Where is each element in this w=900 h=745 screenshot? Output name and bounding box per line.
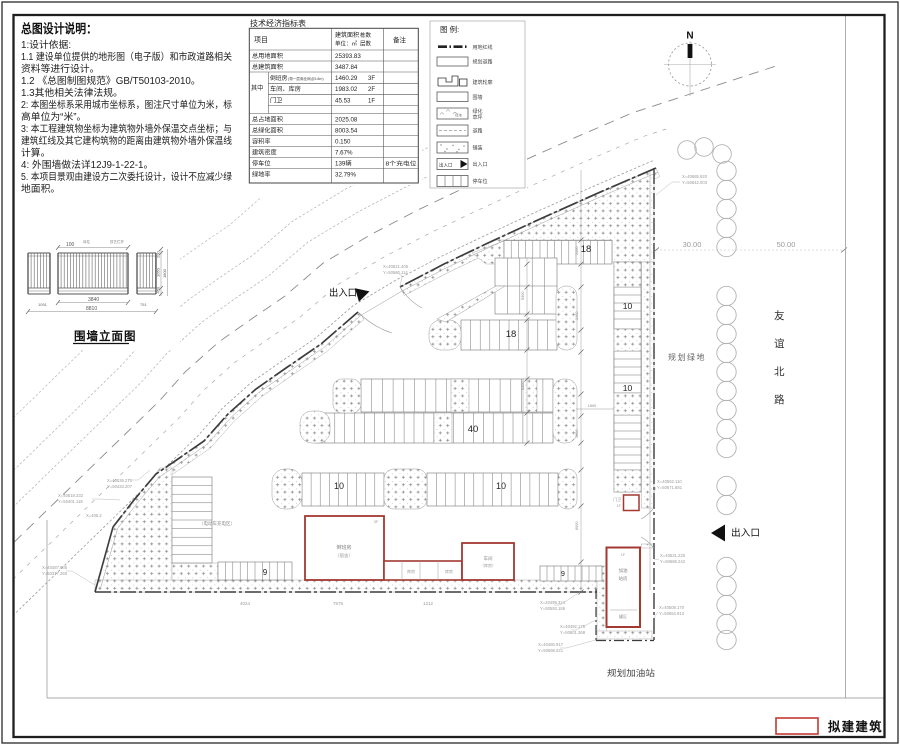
- svg-text:4024: 4024: [240, 601, 251, 606]
- svg-text:Y=50601.368: Y=50601.368: [560, 630, 586, 635]
- svg-text:项目: 项目: [254, 36, 268, 44]
- svg-text:资料等进行设计。: 资料等进行设计。: [21, 62, 99, 75]
- svg-text:车间: 车间: [484, 555, 493, 562]
- svg-text:1460.29: 1460.29: [335, 75, 358, 82]
- svg-text:备注: 备注: [393, 35, 407, 44]
- svg-text:建筑密度: 建筑密度: [252, 148, 277, 156]
- svg-text:1500: 1500: [588, 404, 596, 408]
- svg-text:地面积。: 地面积。: [21, 182, 60, 195]
- svg-text:库房: 库房: [445, 568, 453, 574]
- svg-text:32.79%: 32.79%: [335, 171, 356, 178]
- svg-text:X=40531.225: X=40531.225: [660, 553, 686, 558]
- svg-text:围墙: 围墙: [473, 94, 483, 101]
- svg-text:建筑轮廓: 建筑轮廓: [473, 79, 493, 86]
- svg-text:2: 本图坐标系采用城市坐标系，图注尺寸单位为米，标: 2: 本图坐标系采用城市坐标系，图注尺寸单位为米，标: [21, 98, 232, 111]
- svg-text:5300: 5300: [521, 382, 525, 390]
- svg-text:砖柱: 砖柱: [83, 239, 90, 244]
- svg-text:8003.54: 8003.54: [335, 127, 358, 134]
- svg-text:出入口: 出入口: [329, 287, 357, 299]
- svg-text:（库房）: （库房）: [480, 562, 496, 568]
- svg-text:1.1 建设单位提供的地形图（电子版）和市政道路相关: 1.1 建设单位提供的地形图（电子版）和市政道路相关: [21, 50, 232, 63]
- svg-text:50.00: 50.00: [777, 240, 796, 249]
- svg-text:单位：㎡: 单位：㎡: [335, 40, 358, 48]
- svg-text:Y=50668.242: Y=50668.242: [660, 559, 686, 564]
- svg-text:1212: 1212: [423, 601, 434, 606]
- svg-text:Y=50377.260: Y=50377.260: [42, 571, 68, 576]
- svg-text:X=40685.920: X=40685.920: [682, 174, 708, 179]
- svg-text:铺装: 铺装: [473, 145, 483, 152]
- svg-text:9: 9: [263, 568, 268, 577]
- svg-text:10: 10: [623, 383, 633, 393]
- svg-text:层数: 层数: [360, 40, 372, 48]
- svg-text:总图设计说明：: 总图设计说明：: [21, 21, 97, 36]
- svg-text:计算。: 计算。: [21, 146, 50, 159]
- svg-text:Y=50401.118: Y=50401.118: [58, 499, 83, 504]
- svg-text:4: 外围墙做法详12J9-1-22-1。: 4: 外围墙做法详12J9-1-22-1。: [21, 158, 153, 171]
- svg-text:2400: 2400: [575, 247, 579, 255]
- svg-text:高单位为“米”。: 高单位为“米”。: [21, 110, 86, 123]
- svg-text:草坪: 草坪: [473, 114, 483, 121]
- svg-text:200: 200: [156, 251, 161, 258]
- svg-text:栋数: 栋数: [360, 31, 372, 39]
- svg-text:3F: 3F: [374, 519, 379, 524]
- svg-text:图 例:: 图 例:: [440, 24, 459, 34]
- svg-text:罐区: 罐区: [619, 613, 627, 619]
- svg-text:100: 100: [66, 242, 75, 248]
- svg-text:用地红线: 用地红线: [473, 44, 493, 51]
- svg-text:1983.02: 1983.02: [335, 86, 358, 93]
- svg-text:绿地率: 绿地率: [252, 170, 271, 178]
- svg-text:绿化: 绿化: [473, 108, 483, 115]
- svg-text:规划道路: 规划道路: [473, 59, 493, 66]
- svg-text:X=40480.917: X=40480.917: [538, 642, 564, 647]
- svg-text:总绿化面积: 总绿化面积: [252, 126, 283, 134]
- svg-text:3F: 3F: [368, 76, 375, 82]
- svg-text:7575: 7575: [333, 601, 344, 606]
- svg-text:停车位: 停车位: [473, 178, 488, 185]
- svg-text:X=40518.332: X=40518.332: [58, 493, 84, 498]
- svg-text:门卫: 门卫: [613, 497, 621, 502]
- svg-text:X=405.2: X=405.2: [86, 513, 102, 518]
- svg-text:Y=50642.003: Y=50642.003: [682, 180, 708, 185]
- svg-text:规划绿地: 规划绿地: [668, 352, 706, 362]
- svg-text:3840: 3840: [88, 297, 99, 303]
- svg-text:1800: 1800: [162, 268, 167, 278]
- svg-text:友: 友: [774, 309, 785, 322]
- svg-text:45.53: 45.53: [335, 97, 351, 104]
- svg-text:出入口: 出入口: [473, 161, 488, 168]
- svg-text:绿地: 绿地: [455, 113, 463, 118]
- svg-text:Y=50560.114: Y=50560.114: [383, 270, 408, 275]
- svg-text:拟建建筑: 拟建建筑: [828, 719, 883, 734]
- svg-text:0.150: 0.150: [335, 138, 351, 145]
- svg-text:18: 18: [506, 329, 517, 340]
- svg-text:建筑红线及其它建构筑物的距离由建筑物外墙外保温线: 建筑红线及其它建构筑物的距离由建筑物外墙外保温线: [21, 134, 232, 147]
- svg-text:技术经济指标表: 技术经济指标表: [250, 18, 306, 28]
- svg-text:1.3其他相关法律法规。: 1.3其他相关法律法规。: [21, 86, 123, 99]
- svg-text:1051: 1051: [38, 302, 48, 307]
- svg-text:10: 10: [496, 481, 506, 491]
- svg-text:1F: 1F: [368, 98, 375, 104]
- svg-text:铁艺栏杆: 铁艺栏杆: [110, 239, 124, 244]
- svg-text:路: 路: [774, 393, 785, 406]
- svg-text:倒班房: 倒班房: [270, 74, 288, 82]
- svg-text:总占地面积: 总占地面积: [252, 115, 283, 123]
- svg-text:1:设计依据:: 1:设计依据:: [21, 38, 71, 51]
- svg-text:6000: 6000: [575, 522, 579, 530]
- svg-text:7.67%: 7.67%: [335, 149, 353, 156]
- svg-text:其中: 其中: [251, 84, 263, 92]
- svg-text:总用地面积: 总用地面积: [252, 52, 283, 60]
- svg-text:出入口: 出入口: [439, 162, 453, 169]
- svg-text:Y=50433.207: Y=50433.207: [107, 484, 133, 489]
- svg-text:X=40492.175: X=40492.175: [560, 624, 586, 629]
- svg-text:车间、库房: 车间、库房: [270, 85, 301, 93]
- svg-text:18: 18: [581, 244, 592, 255]
- svg-text:2F: 2F: [368, 87, 375, 93]
- svg-text:X=40536.271: X=40536.271: [107, 478, 133, 483]
- svg-text:30.00: 30.00: [683, 240, 702, 249]
- svg-text:450: 450: [156, 286, 161, 293]
- svg-text:5300: 5300: [521, 292, 525, 300]
- svg-text:X=40562.110: X=40562.110: [657, 479, 682, 484]
- svg-text:9: 9: [561, 571, 565, 578]
- svg-text:751: 751: [140, 302, 147, 307]
- svg-text:（电动车充电区）: （电动车充电区）: [199, 520, 235, 527]
- svg-text:1050: 1050: [156, 267, 161, 277]
- svg-text:1.2 《总图制图规范》GB/T50103-2010。: 1.2 《总图制图规范》GB/T50103-2010。: [21, 74, 201, 87]
- svg-text:出入口: 出入口: [731, 527, 760, 539]
- svg-text:3487.84: 3487.84: [335, 64, 358, 71]
- svg-text:门卫: 门卫: [270, 96, 282, 104]
- svg-text:2025.08: 2025.08: [335, 116, 358, 123]
- svg-text:Y=50593.186: Y=50593.186: [540, 606, 566, 611]
- svg-text:停车位: 停车位: [252, 159, 271, 167]
- svg-text:Y=50671.881: Y=50671.881: [657, 485, 683, 490]
- svg-text:2400: 2400: [575, 312, 579, 320]
- svg-text:X=40487.905: X=40487.905: [42, 565, 68, 570]
- svg-text:40: 40: [468, 424, 479, 435]
- svg-text:规划加油站: 规划加油站: [607, 668, 656, 678]
- svg-text:1F: 1F: [617, 504, 622, 508]
- svg-text:3: 本工程建筑物坐标为建筑物外墙外保温交点坐标；与: 3: 本工程建筑物坐标为建筑物外墙外保温交点坐标；与: [21, 122, 232, 135]
- svg-text:139辆: 139辆: [335, 159, 352, 167]
- svg-text:N: N: [686, 31, 693, 42]
- svg-text:X=40499.324: X=40499.324: [540, 600, 566, 605]
- svg-text:容积率: 容积率: [252, 137, 271, 145]
- svg-text:北: 北: [774, 366, 785, 378]
- svg-text:8个充电位: 8个充电位: [386, 159, 418, 167]
- svg-text:5. 本项目景观由建设方二次委托设计，设计不应减少绿: 5. 本项目景观由建设方二次委托设计，设计不应减少绿: [21, 170, 232, 183]
- svg-text:建筑面积: 建筑面积: [335, 31, 359, 39]
- svg-text:25393.83: 25393.83: [335, 53, 361, 60]
- svg-text:4800: 4800: [575, 430, 579, 438]
- svg-text:（宿舍）: （宿舍）: [335, 552, 353, 559]
- svg-text:1F: 1F: [621, 553, 626, 557]
- svg-text:总建筑面积: 总建筑面积: [252, 63, 283, 71]
- svg-text:Y=50598.021: Y=50598.021: [538, 648, 564, 653]
- svg-text:8810: 8810: [86, 306, 97, 312]
- svg-text:站房: 站房: [619, 575, 628, 582]
- svg-text:10: 10: [334, 481, 344, 491]
- svg-text:Y=50664.913: Y=50664.913: [659, 611, 685, 616]
- svg-text:10: 10: [623, 301, 633, 311]
- svg-text:道路: 道路: [473, 128, 483, 135]
- svg-text:谊: 谊: [774, 337, 785, 350]
- svg-text:倒班房: 倒班房: [336, 544, 351, 551]
- svg-text:X=40508.170: X=40508.170: [659, 605, 685, 610]
- svg-text:加油: 加油: [619, 567, 628, 574]
- svg-text:X=40621.405: X=40621.405: [383, 264, 409, 269]
- svg-text:(带一层商业网点5.8m): (带一层商业网点5.8m): [288, 76, 324, 81]
- svg-text:库房: 库房: [407, 568, 415, 574]
- svg-text:围墙立面图: 围墙立面图: [74, 329, 137, 343]
